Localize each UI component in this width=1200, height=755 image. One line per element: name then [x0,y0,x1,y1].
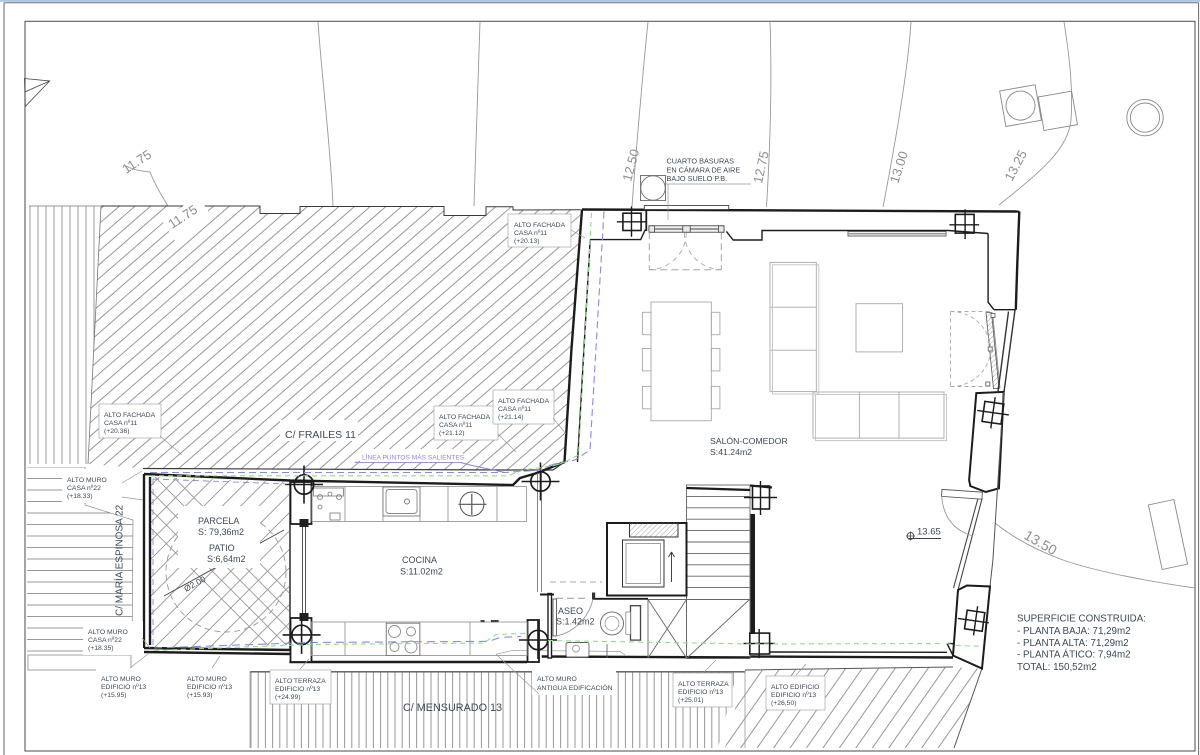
svg-text:CASA nº11: CASA nº11 [498,406,532,413]
svg-text:- PLANTA ÁTICO: 7,94m2: - PLANTA ÁTICO: 7,94m2 [1017,650,1131,661]
svg-text:(+21.14): (+21.14) [498,414,524,421]
svg-text:S:1.42m2: S:1.42m2 [556,617,595,627]
svg-text:EDIFICIO nº13: EDIFICIO nº13 [771,692,816,699]
svg-text:(+20.36): (+20.36) [104,428,130,435]
svg-text:PARCELA: PARCELA [198,516,239,526]
svg-text:CASA nº11: CASA nº11 [514,230,548,237]
svg-text:S:6,64m2: S:6,64m2 [207,554,246,564]
svg-text:ALTO MURO: ALTO MURO [67,477,107,484]
svg-text:CASA nº22: CASA nº22 [88,637,122,644]
svg-text:- PLANTA BAJA: 71,29m2: - PLANTA BAJA: 71,29m2 [1017,626,1131,637]
svg-text:(+21.12): (+21.12) [439,430,465,437]
svg-text:(+15.93): (+15.93) [187,692,213,699]
svg-text:(+25.01): (+25.01) [678,697,704,704]
svg-text:ALTO FACHADA: ALTO FACHADA [514,222,566,229]
svg-text:C/ MENSURADO 13: C/ MENSURADO 13 [403,702,502,714]
svg-text:ALTO TERRAZA: ALTO TERRAZA [275,678,326,685]
svg-text:13.65: 13.65 [917,527,941,538]
svg-text:CASA nº22: CASA nº22 [67,485,101,492]
svg-text:ALTO TERRAZA: ALTO TERRAZA [678,681,729,688]
svg-text:(+18.35): (+18.35) [88,645,114,652]
svg-text:ALTO MURO: ALTO MURO [537,676,577,683]
svg-text:(+20.13): (+20.13) [514,238,540,245]
svg-text:CASA nº11: CASA nº11 [104,420,138,427]
svg-text:ALTO MURO: ALTO MURO [101,676,141,683]
svg-text:ALTO MURO: ALTO MURO [187,676,227,683]
svg-text:SALÓN-COMEDOR: SALÓN-COMEDOR [710,436,788,446]
svg-text:ANTIGUA EDIFICACIÓN: ANTIGUA EDIFICACIÓN [537,683,613,692]
svg-text:ALTO FACHADA: ALTO FACHADA [439,414,491,421]
svg-text:S:11.02m2: S:11.02m2 [400,567,443,577]
svg-text:- PLANTA ALTA: 71,29m2: - PLANTA ALTA: 71,29m2 [1017,638,1129,649]
svg-text:ALTO FACHADA: ALTO FACHADA [498,398,550,405]
svg-text:PATIO: PATIO [209,543,235,553]
svg-text:CUARTO BASURAS: CUARTO BASURAS [667,157,735,166]
svg-text:TOTAL: 150,52m2: TOTAL: 150,52m2 [1017,662,1097,673]
svg-text:(+18.33): (+18.33) [67,493,93,500]
svg-text:LÍNEA PUNTOS MÁS SALIENTES: LÍNEA PUNTOS MÁS SALIENTES [362,453,465,462]
svg-text:EN CÁMARA DE AIRE: EN CÁMARA DE AIRE [667,165,741,174]
svg-text:S:41.24m2: S:41.24m2 [710,447,752,457]
svg-text:SUPERFICIE CONSTRUIDA:: SUPERFICIE CONSTRUIDA: [1017,614,1146,625]
svg-text:(+15.95): (+15.95) [101,692,127,699]
svg-text:BAJO SUELO P.B.: BAJO SUELO P.B. [667,174,728,183]
svg-text:COCINA: COCINA [402,555,437,565]
svg-text:(+26,50): (+26,50) [771,700,797,707]
svg-text:EDIFICIO nº13: EDIFICIO nº13 [275,686,320,693]
svg-text:ASEO: ASEO [558,606,583,616]
svg-text:C/ FRAILES 11: C/ FRAILES 11 [285,429,356,441]
svg-text:(+24.99): (+24.99) [275,694,301,701]
svg-text:ALTO MURO: ALTO MURO [88,629,128,636]
svg-text:S: 79,36m2: S: 79,36m2 [198,527,244,537]
svg-text:EDIFICIO nº13: EDIFICIO nº13 [101,684,146,691]
svg-text:EDIFICIO nº13: EDIFICIO nº13 [678,689,723,696]
svg-text:C/ MARÍA ESPINOSA 22: C/ MARÍA ESPINOSA 22 [113,504,126,616]
svg-text:EDIFICIO nº13: EDIFICIO nº13 [187,684,232,691]
svg-text:CASA nº11: CASA nº11 [439,422,473,429]
svg-text:ALTO FACHADA: ALTO FACHADA [104,412,156,419]
svg-text:ALTO EDIFICIO: ALTO EDIFICIO [771,684,819,691]
